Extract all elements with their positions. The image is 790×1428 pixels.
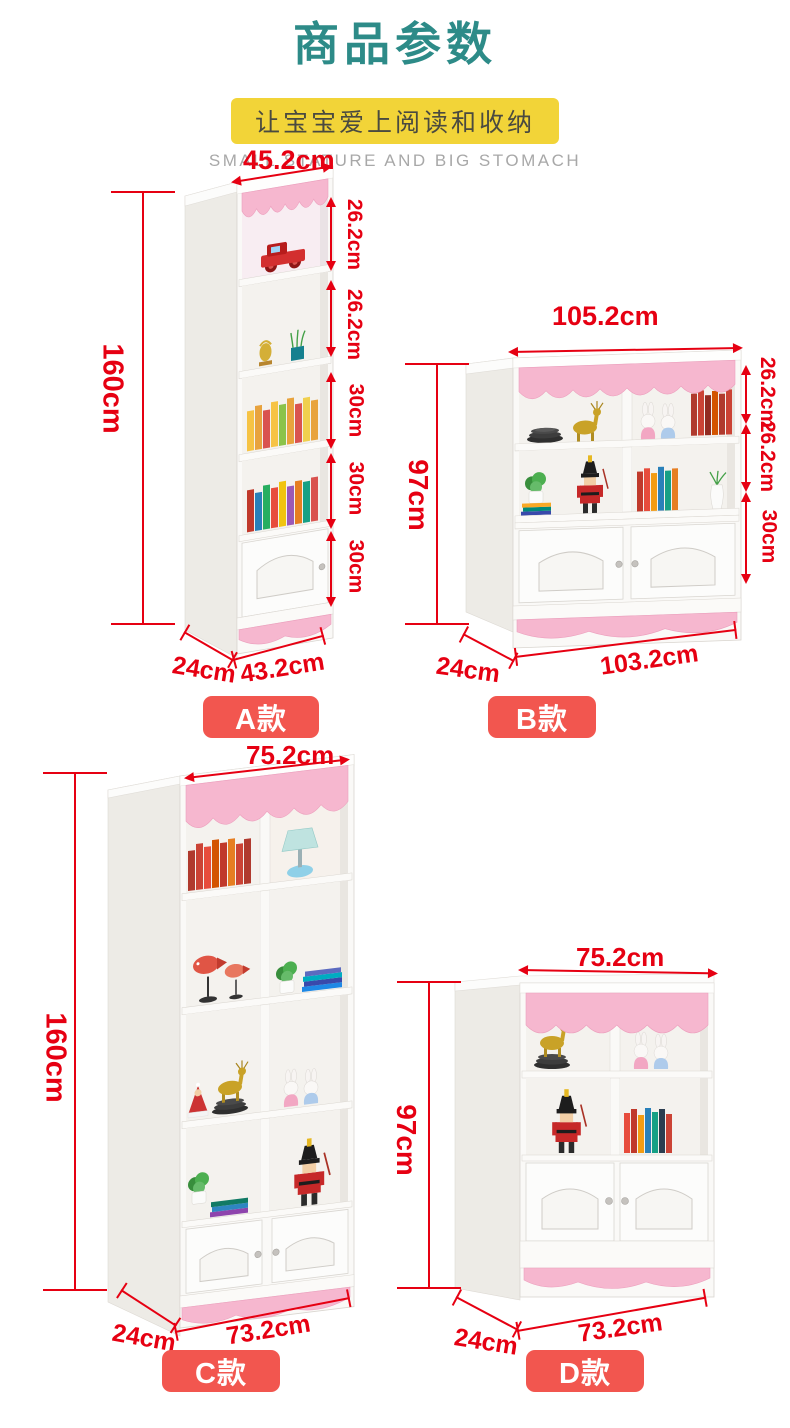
- dim-d-bottom-width: 73.2cm: [577, 1310, 664, 1347]
- dim-a-seg-arrow: [330, 533, 332, 605]
- dim-a-height: 160cm: [98, 343, 127, 433]
- page-title: 商品参数: [0, 8, 790, 74]
- dim-d-height: 97cm: [392, 1104, 420, 1176]
- dim-c-height: 160cm: [41, 1012, 70, 1102]
- model-d-badge: D款: [526, 1350, 644, 1392]
- dim-d-top-width: 75.2cm: [576, 944, 664, 970]
- dim-b-depth: 24cm: [435, 654, 502, 688]
- dim-a-seg-arrow: [330, 455, 332, 527]
- dim-a-seg-arrow: [330, 374, 332, 447]
- dim-b-seg-arrow: [745, 494, 747, 582]
- pink-skirt-graphic: [524, 1268, 710, 1289]
- dim-b-height-line: [436, 364, 438, 624]
- door-knob-graphic: [606, 1198, 613, 1205]
- dim-a-seg-3: 30cm: [345, 384, 366, 438]
- dim-b-seg-3: 30cm: [758, 510, 779, 564]
- dim-a-seg-5: 30cm: [345, 540, 366, 594]
- dim-b-height: 97cm: [404, 459, 432, 531]
- dim-a-seg-1: 26.2cm: [344, 199, 365, 270]
- door-knob-graphic: [622, 1198, 629, 1205]
- plates-graphic: [534, 1054, 570, 1069]
- books-graphic: [521, 503, 551, 516]
- dim-a-seg-arrow: [330, 282, 332, 355]
- dim-a-seg-arrow: [330, 199, 332, 269]
- bookshelf-a-graphic: [183, 165, 335, 665]
- door-knob-graphic: [616, 561, 622, 568]
- dim-b-seg-2: 26.2cm: [757, 421, 778, 492]
- dim-b-seg-1: 26.2cm: [757, 357, 778, 428]
- tagline-badge: 让宝宝爱上阅读和收纳: [231, 98, 559, 144]
- dim-a-top-width: 45.2cm: [243, 147, 335, 174]
- dim-a-seg-2: 26.2cm: [344, 289, 365, 360]
- dim-c-height-line: [74, 773, 76, 1290]
- door-knob-graphic: [632, 560, 638, 567]
- books-graphic: [624, 1108, 672, 1153]
- subtitle: SMALL STATURE AND BIG STOMACH: [0, 151, 790, 171]
- bookshelf-c-graphic: [106, 752, 356, 1340]
- dim-b-top-width: 105.2cm: [552, 303, 659, 330]
- dim-a-seg-4: 30cm: [345, 462, 366, 516]
- bookshelf-b-graphic: [462, 330, 752, 660]
- dim-b-seg-arrow: [745, 426, 747, 490]
- dim-b-seg-arrow: [745, 367, 747, 422]
- dim-a-height-line: [142, 192, 144, 624]
- gold-figurine-graphic: [259, 340, 272, 366]
- bookshelf-d-graphic: [450, 950, 725, 1310]
- cabinet-door-graphic: [242, 529, 328, 617]
- model-c-badge: C款: [162, 1350, 280, 1392]
- model-a-badge: A款: [203, 696, 319, 738]
- dim-d-depth: 24cm: [452, 1325, 519, 1360]
- model-b-badge: B款: [488, 696, 596, 738]
- dim-d-height-line: [428, 982, 430, 1288]
- header: 商品参数 让宝宝爱上阅读和收纳 SMALL STATURE AND BIG ST…: [0, 0, 790, 171]
- product-parameters-infographic: 商品参数 让宝宝爱上阅读和收纳 SMALL STATURE AND BIG ST…: [0, 0, 790, 1428]
